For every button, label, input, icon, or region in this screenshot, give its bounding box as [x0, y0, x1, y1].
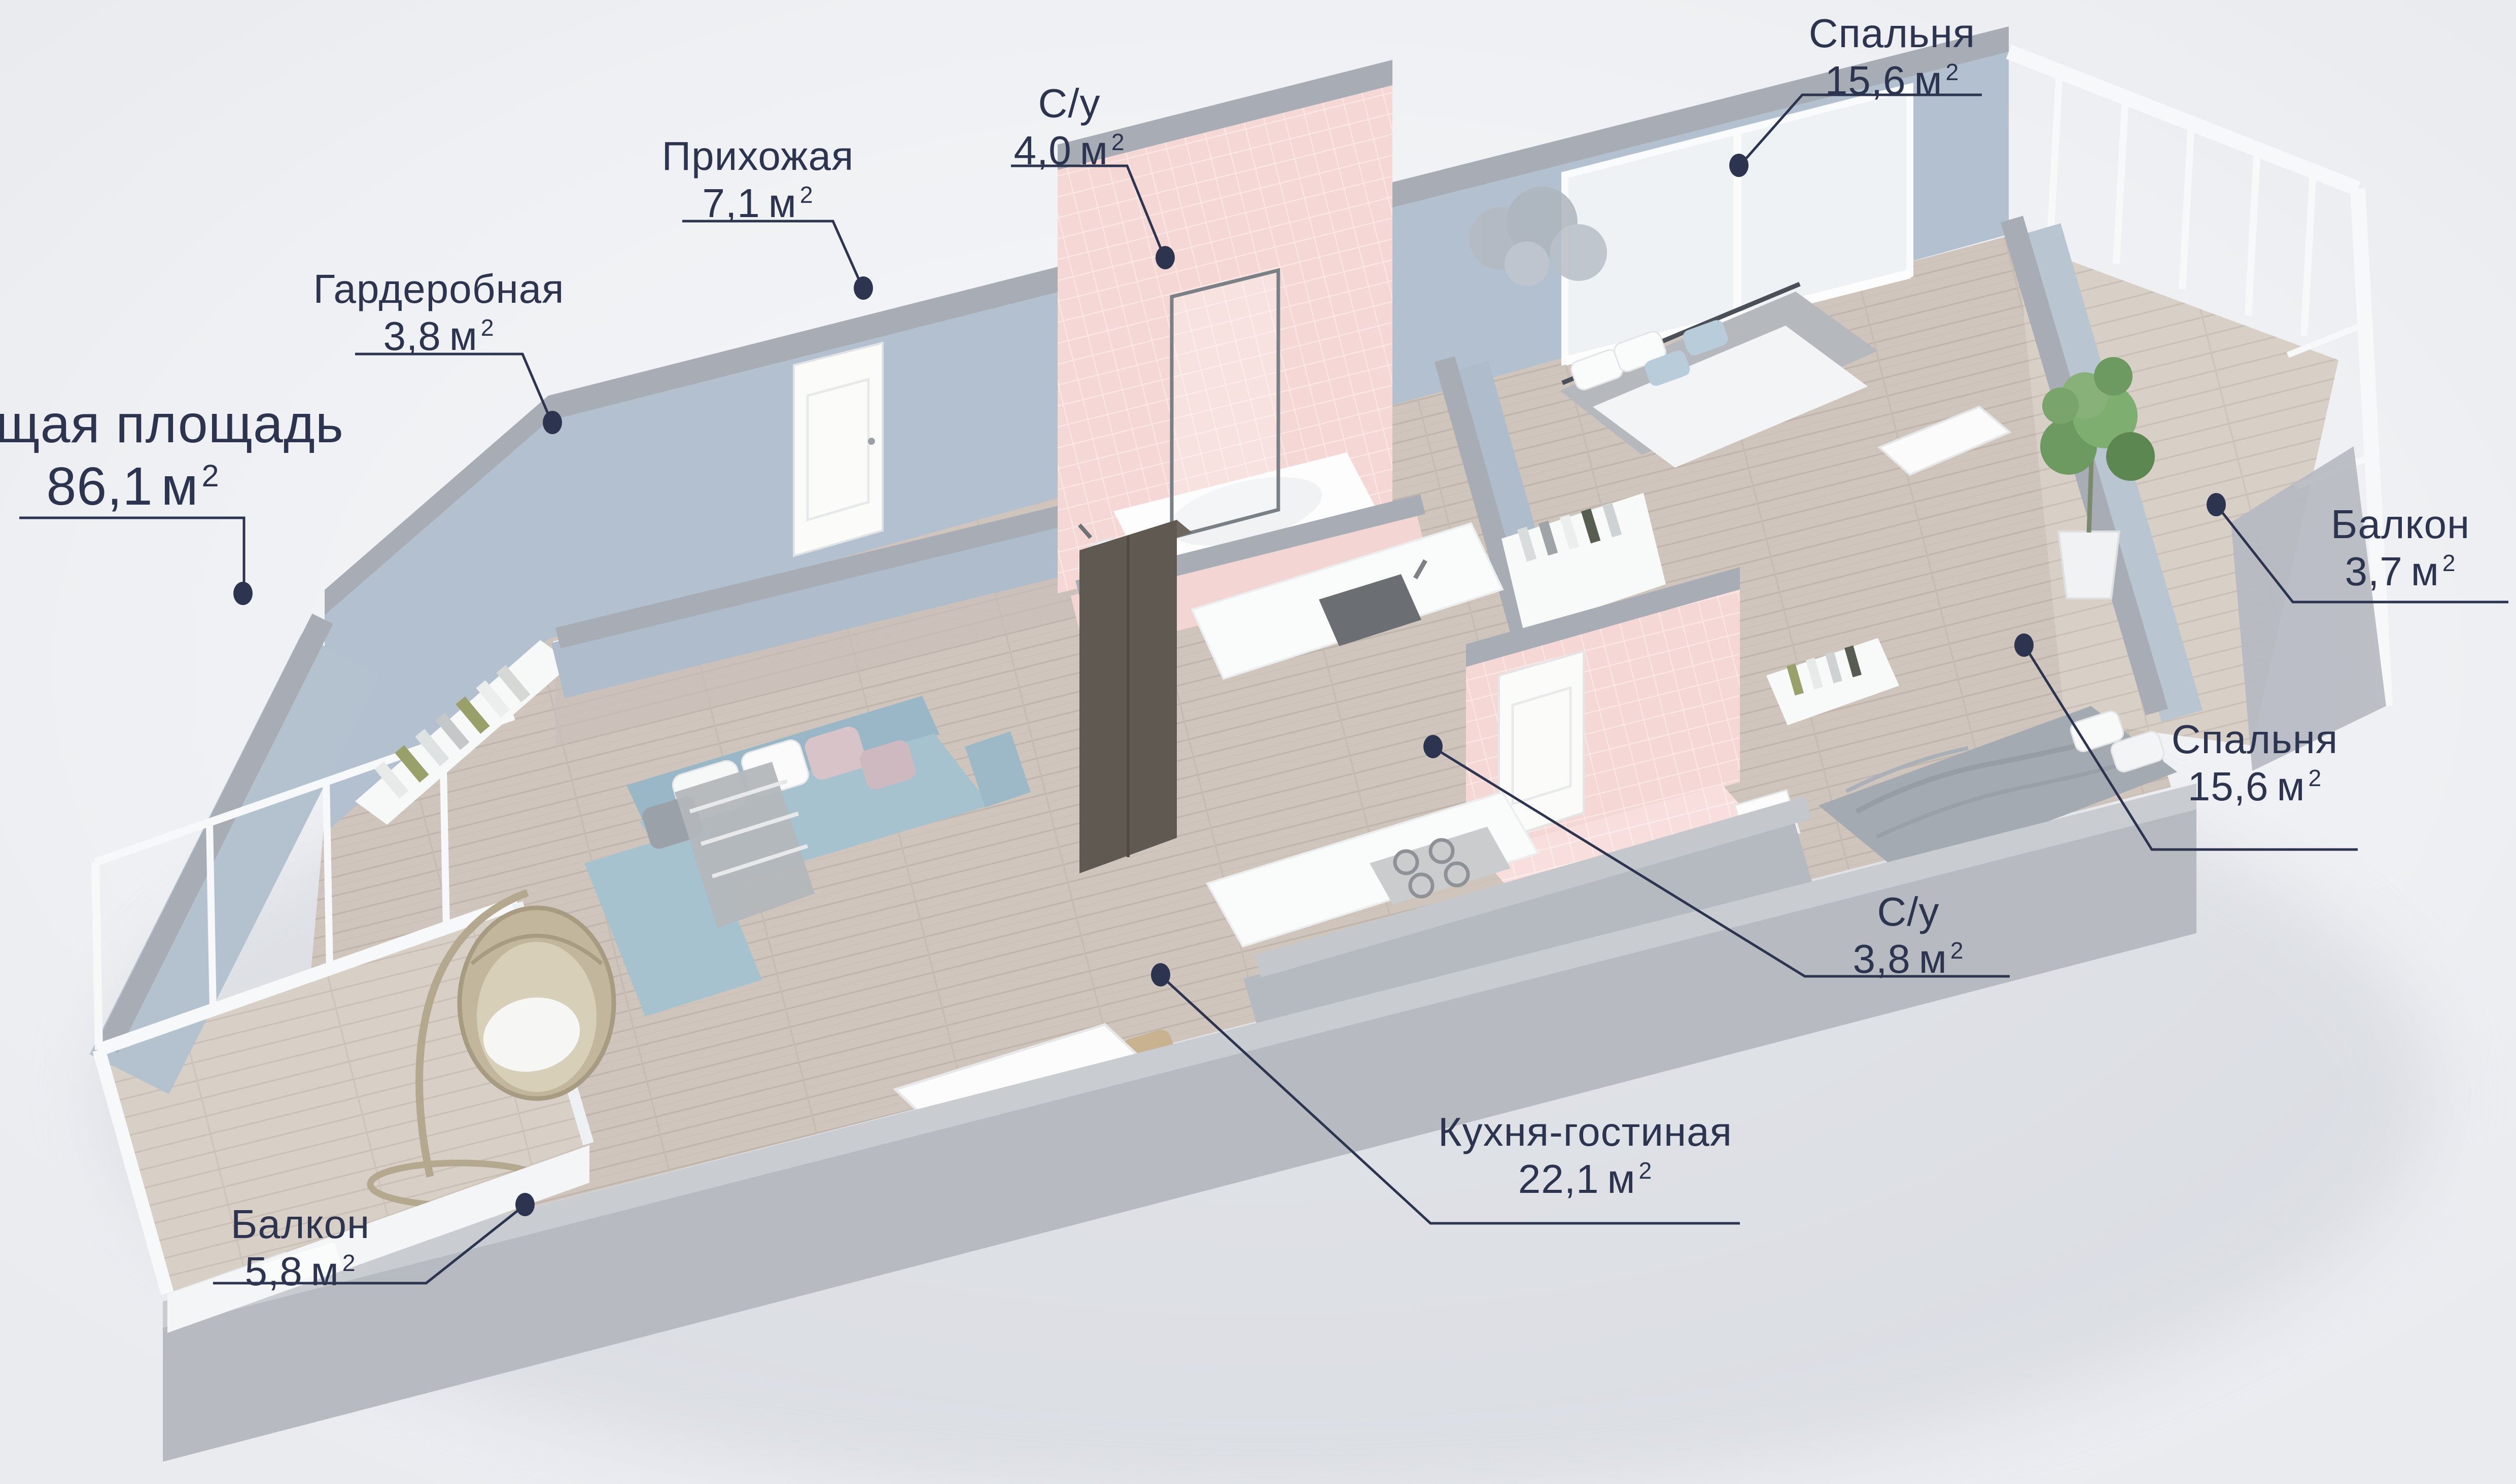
leader-dot — [233, 582, 253, 605]
leader-dot — [515, 1193, 535, 1216]
leader-dot — [2207, 493, 2226, 516]
room-area: 15,6м2 — [2172, 763, 2338, 810]
leader-dot — [1729, 154, 1749, 177]
room-name: Балкон — [2331, 501, 2470, 548]
leader-dot — [2014, 633, 2034, 657]
room-label-balcony-left: Балкон 5,8м2 — [231, 1201, 370, 1295]
room-area: 3,8м2 — [313, 313, 565, 360]
room-area: 4,0м2 — [1014, 127, 1125, 174]
room-name: Прихожая — [662, 133, 854, 180]
room-name: С/у — [1853, 889, 1964, 936]
entry-door — [794, 343, 883, 556]
room-name: Балкон — [231, 1201, 370, 1248]
room-area: 15,6м2 — [1809, 57, 1975, 104]
room-label-bedroom-back: Спальня 15,6м2 — [1809, 10, 1975, 104]
room-label-bedroom-front: Спальня 15,6м2 — [2172, 716, 2338, 810]
room-label-hallway: Прихожая 7,1м2 — [662, 133, 854, 227]
overall-area: 86,1м2 — [0, 455, 344, 518]
overall-label: Общая площадь — [0, 393, 344, 455]
room-name: Спальня — [1809, 10, 1975, 57]
kitchen-fridge — [1079, 520, 1192, 873]
room-name: Спальня — [2172, 716, 2338, 763]
room-label-kitchen-living: Кухня-гостиная 22,1м2 — [1438, 1109, 1732, 1203]
room-name: Кухня-гостиная — [1438, 1109, 1732, 1156]
leader-dot — [1151, 963, 1170, 986]
room-name: С/у — [1014, 80, 1125, 127]
leader-dot — [543, 411, 562, 434]
room-label-bathroom-front: С/у 3,8м2 — [1853, 889, 1964, 983]
room-area: 5,8м2 — [231, 1248, 370, 1295]
room-label-balcony-right: Балкон 3,7м2 — [2331, 501, 2470, 595]
room-name: Гардеробная — [313, 266, 565, 313]
floor-plan-render — [0, 0, 2516, 1484]
floor-plan-page: Спальня 15,6м2 С/у 4,0м2 Прихожая 7,1м2 … — [0, 0, 2516, 1484]
room-area: 3,8м2 — [1853, 936, 1964, 983]
room-label-bathroom-back: С/у 4,0м2 — [1014, 80, 1125, 174]
overall-area-title: Общая площадь 86,1м2 — [0, 393, 344, 518]
room-label-wardrobe: Гардеробная 3,8м2 — [313, 266, 565, 360]
leader-dot — [1423, 735, 1443, 758]
leader-dot — [854, 276, 873, 300]
leader-dot — [1156, 246, 1175, 269]
room-area: 22,1м2 — [1438, 1156, 1732, 1203]
room-area: 3,7м2 — [2331, 548, 2470, 595]
room-area: 7,1м2 — [662, 180, 854, 227]
shower-screen — [1172, 270, 1278, 538]
